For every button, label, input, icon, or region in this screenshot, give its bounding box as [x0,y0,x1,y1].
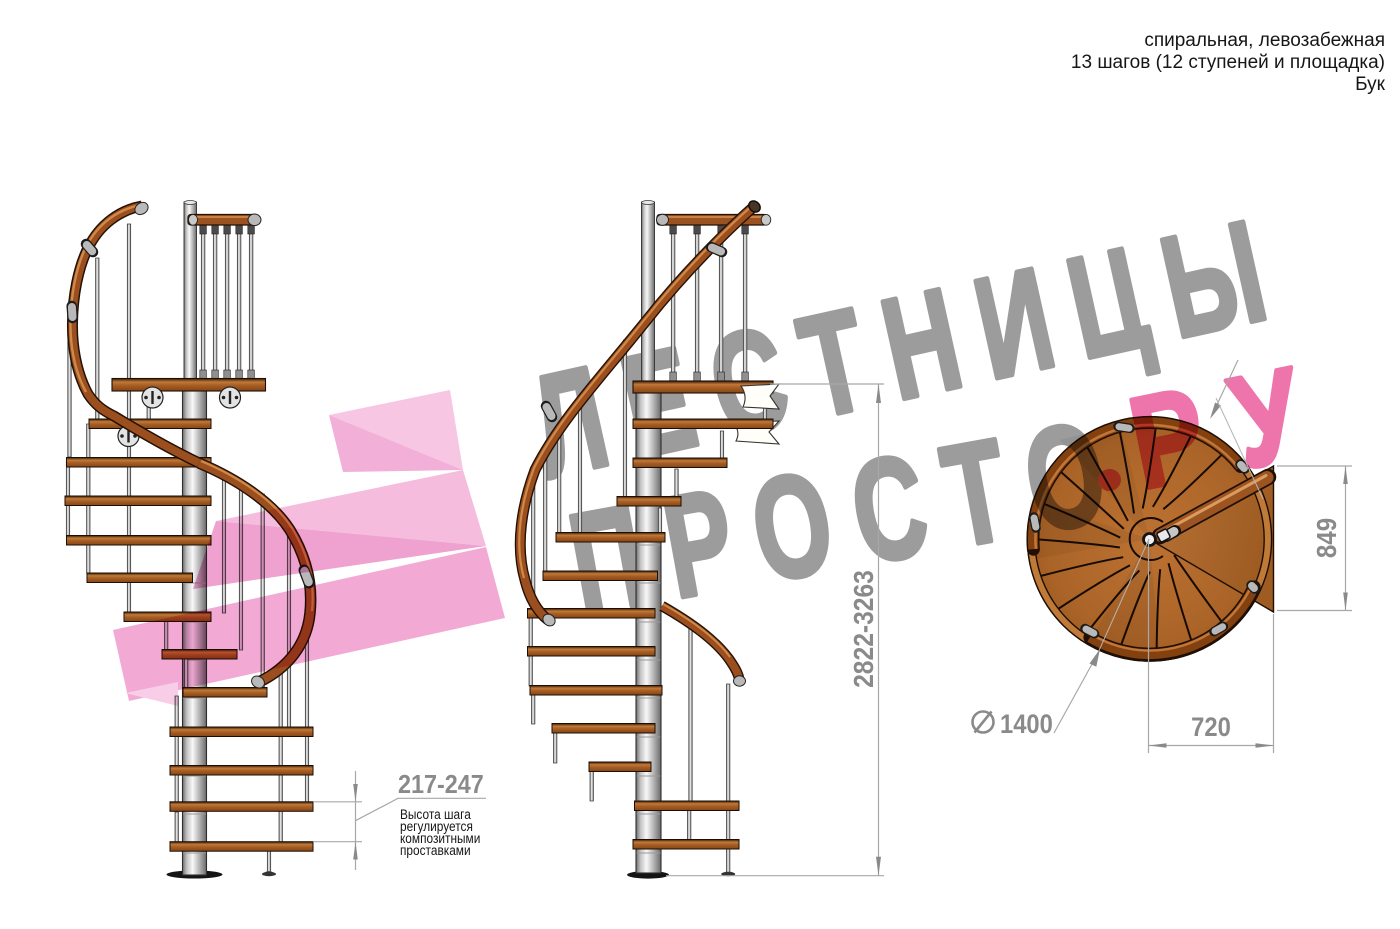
svg-text:849: 849 [1313,518,1343,558]
svg-text:проставками: проставками [400,842,471,858]
svg-text:спиральная, левозабежная: спиральная, левозабежная [1144,30,1385,51]
svg-text:217-247: 217-247 [398,771,484,799]
svg-text:13 шагов (12 ступеней и площад: 13 шагов (12 ступеней и площадка) [1071,52,1385,73]
svg-text:2822-3263: 2822-3263 [848,570,880,688]
svg-text:1400: 1400 [1000,710,1053,740]
svg-text:Бук: Бук [1355,74,1386,95]
svg-text:720: 720 [1191,713,1231,743]
